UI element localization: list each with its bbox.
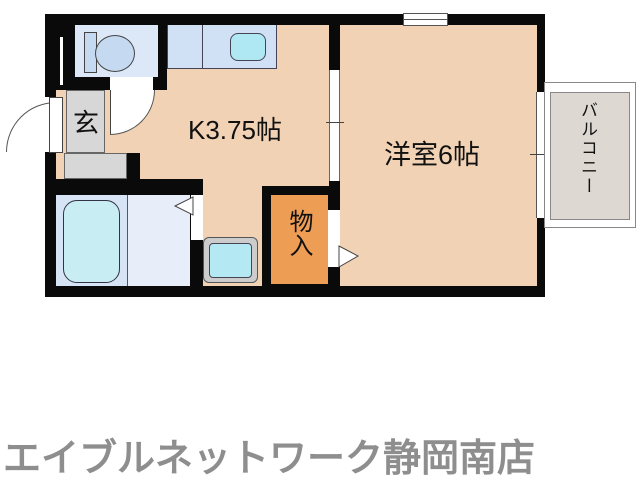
closet-label: 物入	[284, 209, 312, 271]
western-room-label: 洋室6帖	[384, 142, 480, 169]
kitchen-sink-icon	[230, 33, 266, 61]
sliding-door	[329, 70, 340, 181]
bedroom-top-window-line	[404, 19, 447, 20]
toilet-bowl-icon	[95, 35, 135, 72]
entrance-label: 玄	[73, 110, 99, 136]
kitchen-counter-divider	[202, 25, 203, 69]
sliding-door-tick	[326, 122, 344, 123]
toilet-door-opening	[110, 77, 153, 90]
kitchen-label: K3.75帖	[188, 117, 282, 143]
bathtub-icon	[63, 200, 120, 283]
balcony-label: バルコニー	[579, 101, 596, 213]
floor-plan: 玄 物入 バルコニー K3.75帖 洋室6帖	[0, 0, 640, 480]
front-door-leaf	[49, 97, 63, 153]
washroom-door-swing-arrow	[170, 193, 200, 219]
toilet-door-leaf	[110, 90, 111, 134]
washing-machine-icon	[209, 243, 252, 278]
closet-door-swing-arrow	[337, 243, 363, 269]
agency-name: エイブルネットワーク静岡南店	[3, 427, 535, 482]
toilet-window-slit	[60, 37, 63, 85]
entrance-step	[64, 153, 127, 179]
